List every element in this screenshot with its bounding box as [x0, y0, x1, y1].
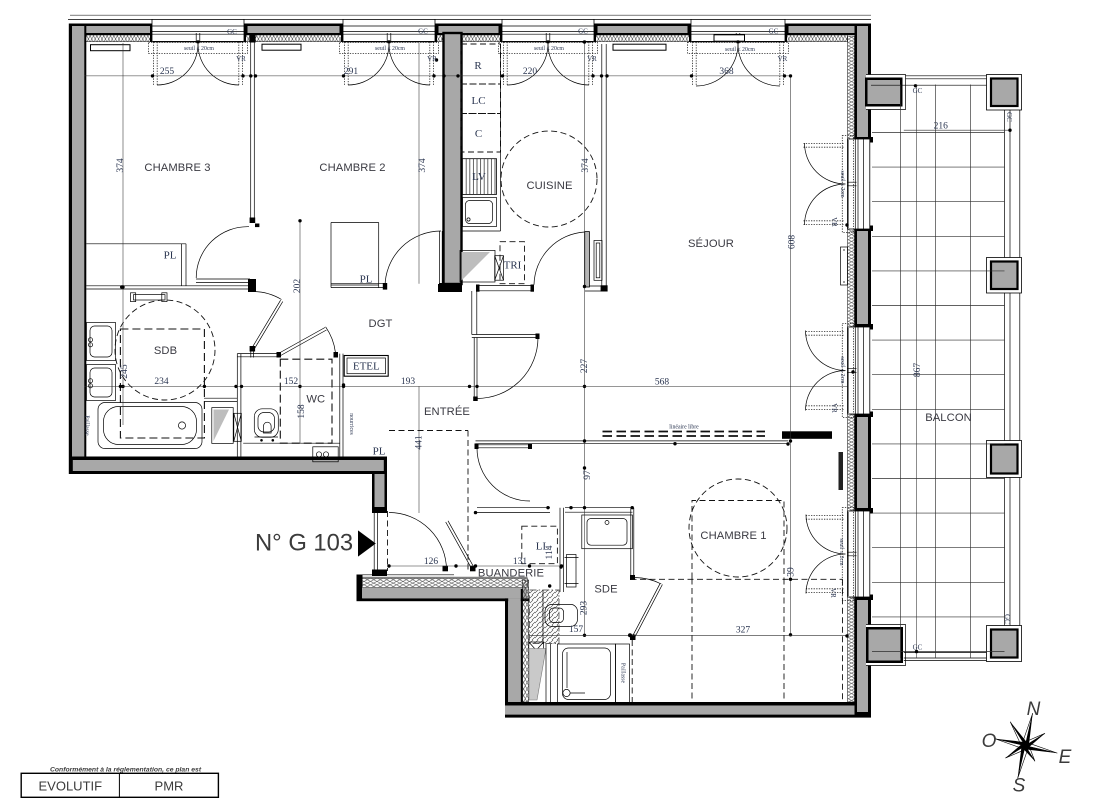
svg-text:CHAMBRE 3: CHAMBRE 3 — [144, 162, 210, 174]
svg-text:158: 158 — [297, 404, 307, 419]
svg-text:97: 97 — [583, 470, 593, 480]
svg-text:LL: LL — [536, 541, 550, 553]
svg-text:374: 374 — [418, 158, 428, 173]
svg-text:PMR: PMR — [155, 779, 184, 794]
svg-text:Conformément à la réglementati: Conformément à la réglementation, ce pla… — [50, 767, 202, 774]
svg-text:seuil ≤ 2cm: seuil ≤ 2cm — [839, 356, 845, 383]
svg-text:TRI: TRI — [504, 260, 522, 272]
svg-text:WC: WC — [306, 394, 325, 406]
svg-text:GC: GC — [227, 28, 237, 36]
svg-text:608: 608 — [788, 235, 798, 250]
svg-text:255: 255 — [160, 67, 175, 77]
svg-text:227: 227 — [580, 359, 590, 374]
svg-text:EVOLUTIF: EVOLUTIF — [39, 779, 103, 794]
svg-text:374: 374 — [116, 158, 126, 173]
svg-text:SDE: SDE — [594, 584, 617, 596]
svg-text:VR: VR — [829, 588, 837, 598]
svg-text:DGT: DGT — [369, 318, 393, 330]
svg-text:S: S — [1013, 776, 1026, 797]
svg-text:867: 867 — [913, 363, 923, 378]
svg-text:BALCON: BALCON — [925, 412, 972, 424]
svg-text:291: 291 — [344, 67, 359, 77]
svg-text:seuil ≤ 20cm: seuil ≤ 20cm — [534, 46, 564, 52]
svg-text:GC: GC — [1003, 614, 1011, 624]
svg-text:seuil ≤ 20cm: seuil ≤ 20cm — [725, 47, 755, 53]
svg-text:PL: PL — [360, 274, 373, 286]
svg-text:Paillasse: Paillasse — [84, 415, 90, 436]
svg-text:152: 152 — [284, 377, 299, 387]
svg-text:C: C — [475, 128, 482, 140]
svg-text:GC: GC — [418, 28, 428, 36]
svg-text:441: 441 — [415, 435, 425, 450]
svg-text:seuil ≤ 20cm: seuil ≤ 20cm — [375, 46, 405, 52]
svg-text:CHAMBRE 2: CHAMBRE 2 — [319, 162, 385, 174]
svg-text:nourrices: nourrices — [348, 413, 354, 435]
svg-text:368: 368 — [719, 67, 734, 77]
svg-text:VR: VR — [236, 55, 246, 63]
svg-text:216: 216 — [934, 121, 949, 131]
svg-text:PL: PL — [373, 446, 386, 458]
svg-text:374: 374 — [581, 158, 591, 173]
svg-text:ETEL: ETEL — [353, 361, 380, 373]
svg-text:VR: VR — [830, 217, 838, 227]
svg-text:N° G 103: N° G 103 — [255, 530, 353, 557]
svg-text:568: 568 — [655, 378, 670, 388]
svg-text:O: O — [982, 731, 997, 752]
svg-text:202: 202 — [293, 279, 303, 294]
svg-text:seuil ≤ 20cm: seuil ≤ 20cm — [184, 46, 214, 52]
svg-text:293: 293 — [580, 601, 590, 616]
svg-text:CUISINE: CUISINE — [526, 180, 572, 192]
svg-text:327: 327 — [736, 626, 751, 636]
svg-text:126: 126 — [424, 557, 439, 567]
svg-text:SÉJOUR: SÉJOUR — [688, 237, 734, 250]
svg-text:GC: GC — [1005, 112, 1013, 122]
svg-text:E: E — [1059, 747, 1072, 768]
svg-text:39: 39 — [787, 567, 797, 577]
svg-text:R: R — [474, 60, 482, 72]
svg-text:VR: VR — [587, 55, 597, 63]
svg-text:linéaire libre: linéaire libre — [669, 425, 699, 431]
svg-text:VR: VR — [830, 403, 838, 413]
svg-text:220: 220 — [523, 67, 538, 77]
svg-text:131: 131 — [513, 557, 528, 567]
svg-text:GC: GC — [913, 644, 923, 652]
svg-text:SDB: SDB — [154, 345, 177, 357]
svg-text:Paillasse: Paillasse — [620, 663, 626, 684]
svg-text:ENTRÉE: ENTRÉE — [424, 405, 470, 418]
svg-text:GC: GC — [769, 28, 779, 36]
svg-text:LV: LV — [472, 171, 486, 183]
svg-text:VR: VR — [427, 55, 437, 63]
svg-text:N: N — [1027, 699, 1041, 720]
svg-text:245: 245 — [120, 364, 130, 379]
svg-text:234: 234 — [154, 377, 169, 387]
svg-text:193: 193 — [401, 377, 416, 387]
svg-text:157: 157 — [569, 625, 584, 635]
svg-text:GC: GC — [913, 87, 923, 95]
svg-text:GC: GC — [578, 28, 588, 36]
svg-text:BUANDERIE: BUANDERIE — [478, 568, 544, 580]
svg-text:PL: PL — [164, 250, 177, 262]
svg-text:seuil ≤ 2cm: seuil ≤ 2cm — [838, 538, 844, 565]
svg-text:CHAMBRE 1: CHAMBRE 1 — [700, 530, 766, 542]
svg-text:LC: LC — [471, 95, 485, 107]
svg-text:seuil ≤ 2cm: seuil ≤ 2cm — [839, 170, 845, 197]
svg-text:VR: VR — [778, 55, 788, 63]
